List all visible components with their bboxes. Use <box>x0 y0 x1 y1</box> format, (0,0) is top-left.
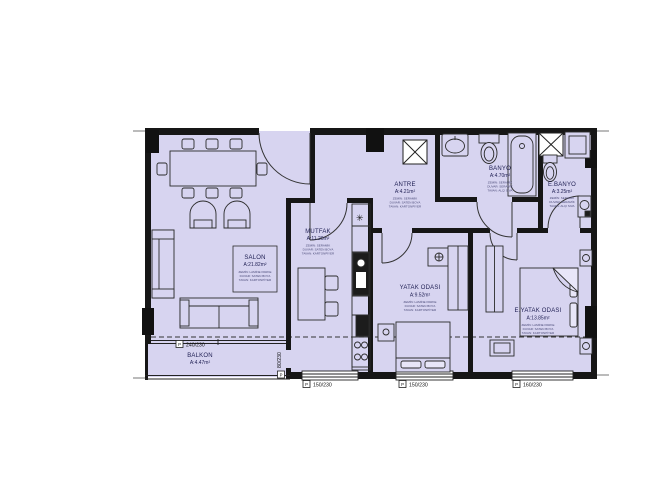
nightstand <box>580 338 592 354</box>
svg-text:A:4.70m²: A:4.70m² <box>490 173 511 179</box>
svg-text:160/230: 160/230 <box>523 383 542 389</box>
window-tag-kitchen: P 150/230 <box>303 381 332 389</box>
svg-text:A:13.85m²: A:13.85m² <box>526 316 549 322</box>
column <box>146 130 159 153</box>
kitchen-chair <box>325 276 338 290</box>
floor-plan-page: ✳ <box>0 0 660 502</box>
svg-text:240/230: 240/230 <box>186 343 205 349</box>
svg-text:ANTRE: ANTRE <box>394 182 415 188</box>
nightstand <box>428 248 450 266</box>
bed <box>396 322 450 372</box>
washbasin <box>442 134 468 156</box>
wardrobe <box>448 246 468 310</box>
svg-text:TAVAN: ALÇI SIVA: TAVAN: ALÇI SIVA <box>550 204 575 208</box>
balkon-label: BALKON A:4.47m² <box>187 353 213 366</box>
svg-text:BALKON: BALKON <box>187 353 213 359</box>
kitchen-table <box>298 268 325 320</box>
svg-text:A:9.52m²: A:9.52m² <box>410 293 431 299</box>
svg-text:150/230: 150/230 <box>409 383 428 389</box>
svg-text:E.BANYO: E.BANYO <box>548 182 576 188</box>
svg-text:P: P <box>178 342 181 347</box>
side-table <box>490 340 514 356</box>
svg-text:MUTFAK: MUTFAK <box>305 229 331 235</box>
svg-text:150/230: 150/230 <box>313 383 332 389</box>
svg-text:P: P <box>401 382 404 387</box>
fridge <box>356 315 369 336</box>
svg-text:P: P <box>515 382 518 387</box>
window-tag-bedroom: P 150/230 <box>399 381 428 389</box>
nightstand <box>378 324 394 341</box>
svg-text:TAVAN: KARTONPİYER: TAVAN: KARTONPİYER <box>302 251 335 256</box>
dining-table <box>170 151 256 186</box>
svg-text:80/230: 80/230 <box>277 352 283 368</box>
sofa <box>180 298 258 328</box>
lamp-symbol: ✳ <box>356 213 364 223</box>
window <box>512 371 573 380</box>
balcony-slider-tag: P 240/230 <box>176 341 205 349</box>
shower-cabin <box>565 132 590 158</box>
wardrobe <box>486 246 503 312</box>
column <box>585 306 597 338</box>
svg-text:TAVAN: KARTONPİYER: TAVAN: KARTONPİYER <box>522 330 555 335</box>
svg-text:TAVAN: KARTONPİYER: TAVAN: KARTONPİYER <box>404 307 437 312</box>
svg-text:BANYO: BANYO <box>489 166 511 172</box>
sofa-vertical <box>152 230 174 298</box>
window-tag-master: P 160/230 <box>513 381 542 389</box>
svg-text:A:21.82m²: A:21.82m² <box>243 262 266 268</box>
svg-text:TAVAN: KARTONPİYER: TAVAN: KARTONPİYER <box>239 277 272 282</box>
toilet <box>543 155 557 182</box>
svg-text:P: P <box>305 382 308 387</box>
column <box>366 128 384 152</box>
svg-text:A:11.20m²: A:11.20m² <box>307 236 330 242</box>
nightstand <box>580 250 592 266</box>
svg-text:A:4.47m²: A:4.47m² <box>190 360 211 366</box>
svg-text:TAVAN: KARTONPİYER: TAVAN: KARTONPİYER <box>389 204 422 209</box>
armchair <box>224 201 250 228</box>
toilet <box>479 134 499 164</box>
armchair <box>190 201 216 228</box>
svg-text:YATAK ODASI: YATAK ODASI <box>400 285 441 291</box>
svg-text:P: P <box>280 373 283 378</box>
svg-text:A:3.25m²: A:3.25m² <box>552 189 573 195</box>
svg-text:A:4.21m²: A:4.21m² <box>395 189 416 195</box>
svg-text:TAVAN: ALÇI SIVA: TAVAN: ALÇI SIVA <box>488 189 513 193</box>
column <box>142 308 154 335</box>
svg-text:E.YATAK ODASI: E.YATAK ODASI <box>515 308 562 314</box>
kitchen-chair <box>325 302 338 316</box>
window <box>302 371 358 380</box>
svg-text:SALON: SALON <box>244 255 265 261</box>
washbasin <box>578 196 591 217</box>
floor-plan: ✳ <box>0 0 660 502</box>
